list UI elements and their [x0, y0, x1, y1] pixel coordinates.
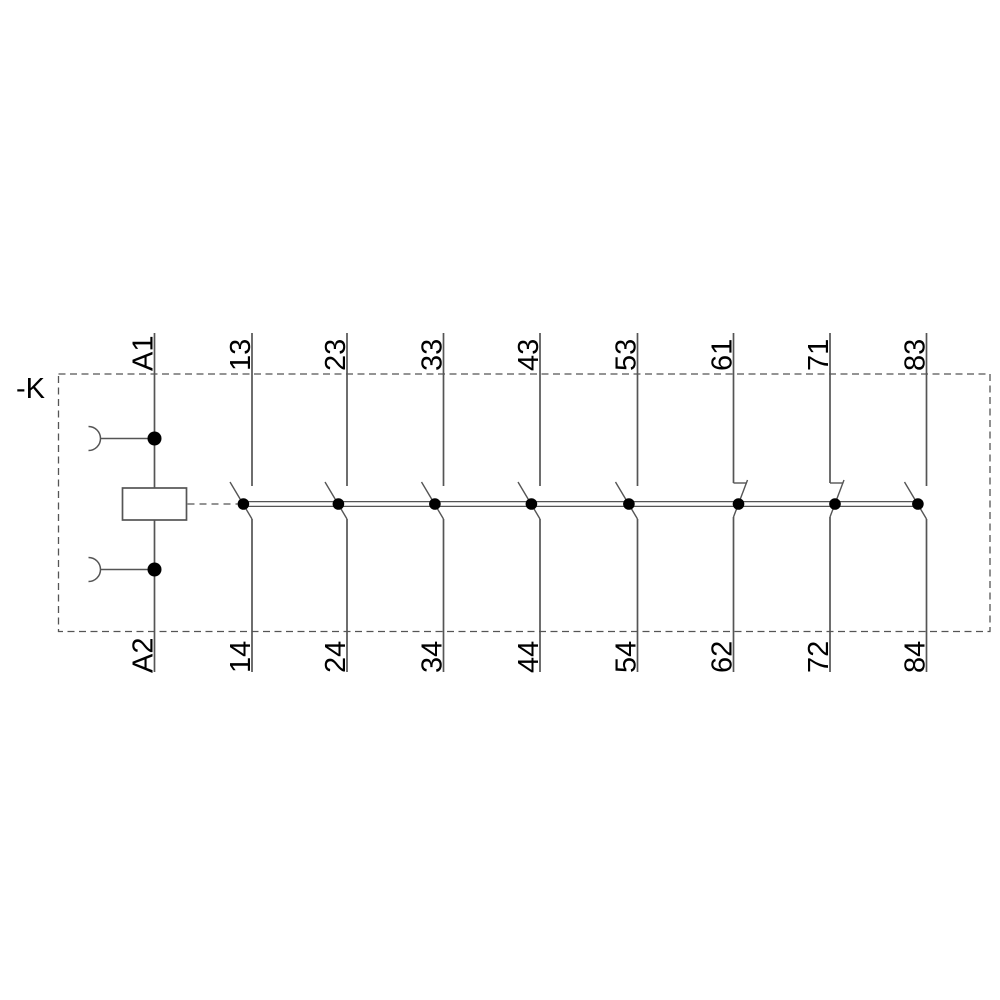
- contact-blade-61: [734, 480, 748, 517]
- contactor-schematic: A1A213142324333443445354616271728384: [0, 0, 1000, 1000]
- contact-61-62: 6162: [707, 333, 748, 673]
- linkage-dot-71: [829, 498, 841, 510]
- terminal-label-13: 13: [225, 339, 257, 371]
- terminal-label-84: 84: [900, 641, 932, 673]
- mechanical-linkage: [243, 502, 918, 507]
- contact-83-84: 8384: [900, 333, 932, 673]
- linkage-dot-53: [623, 498, 635, 510]
- terminal-label-71: 71: [803, 339, 835, 371]
- terminal-label-72: 72: [803, 641, 835, 673]
- contact-33-34: 3334: [417, 333, 449, 673]
- terminal-label-44: 44: [513, 641, 545, 673]
- terminal-label-a2: A2: [128, 638, 160, 673]
- terminal-label-53: 53: [611, 339, 643, 371]
- terminal-label-14: 14: [225, 641, 257, 673]
- linkage-dot-13: [238, 498, 250, 510]
- terminal-label-62: 62: [707, 641, 739, 673]
- terminal-label-23: 23: [320, 339, 352, 371]
- terminal-label-43: 43: [513, 339, 545, 371]
- contact-13-14: 1314: [225, 333, 257, 673]
- contact-53-54: 5354: [611, 333, 643, 673]
- linkage-dot-23: [333, 498, 345, 510]
- socket-arc-a2: [89, 558, 101, 582]
- contact-blade-71: [830, 480, 844, 517]
- contact-23-24: 2324: [320, 333, 352, 673]
- terminal-label-33: 33: [417, 339, 449, 371]
- terminal-label-34: 34: [417, 641, 449, 673]
- linkage-dot-33: [429, 498, 441, 510]
- junction-dot-a1: [148, 432, 162, 446]
- coil-symbol: [123, 488, 187, 520]
- junction-dot-a2: [148, 563, 162, 577]
- enclosure-dashed-border: [59, 374, 991, 632]
- terminal-label-a1: A1: [128, 336, 160, 371]
- linkage-dot-83: [912, 498, 924, 510]
- socket-arc-a1: [89, 427, 101, 451]
- terminal-label-61: 61: [707, 339, 739, 371]
- linkage-dot-43: [526, 498, 538, 510]
- coil-branch: A1A2: [89, 333, 238, 673]
- terminal-label-54: 54: [611, 641, 643, 673]
- terminal-label-83: 83: [900, 339, 932, 371]
- contact-43-44: 4344: [513, 333, 545, 673]
- schematic-page: -K A1A213142324333443445354616271728384: [0, 0, 1000, 1000]
- linkage-dot-61: [733, 498, 745, 510]
- terminal-label-24: 24: [320, 641, 352, 673]
- contact-71-72: 7172: [803, 333, 844, 673]
